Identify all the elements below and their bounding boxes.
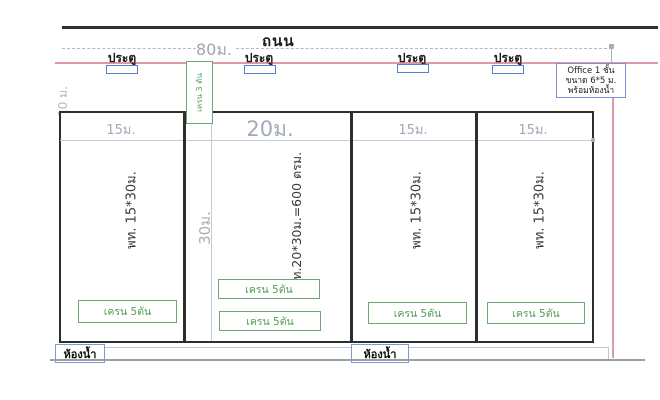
door-symbol-3 — [397, 64, 429, 73]
door-symbol-2 — [244, 65, 276, 74]
road-width-dimension: 80ม. — [196, 38, 232, 63]
section3-width-label: 15ม. — [353, 119, 473, 140]
crane-5ton-label-5: เครน 5ตัน — [512, 305, 559, 322]
section2-width-label: 20ม. — [214, 113, 326, 146]
right-boundary-line — [612, 62, 614, 358]
crane-3ton-label: เครน 3 ตัน — [193, 73, 206, 112]
wall-divider-2 — [350, 113, 353, 341]
site-plan-drawing: ถนน 80ม. 10 ม. ประตู ประตู ประตู ประตู เ… — [0, 0, 660, 400]
crane-5ton-label-3: เครน 5ตัน — [246, 313, 293, 330]
depth-dimension: 30ม. — [193, 211, 217, 245]
construction-line-horizontal — [60, 140, 593, 141]
office-note-line2: ขนาด 6*5 ม. — [557, 76, 625, 86]
office-note-line1: Office 1 ชั้น — [557, 66, 625, 76]
door-symbol-1 — [106, 65, 138, 74]
crane-5ton-box-2: เครน 5ตัน — [218, 279, 320, 299]
section1-width-label: 15ม. — [61, 119, 181, 140]
road-edge-line — [62, 26, 658, 29]
crane-5ton-label-4: เครน 5ตัน — [394, 305, 441, 322]
crane-5ton-box-5: เครน 5ตัน — [487, 302, 585, 324]
section2-area-label: พท.20*30ม.=600 ตรม. — [287, 152, 307, 288]
wall-divider-1 — [183, 113, 186, 341]
bottom-boundary-line — [50, 359, 645, 361]
dimension-tick — [611, 46, 612, 63]
crane-5ton-box-1: เครน 5ตัน — [78, 300, 177, 323]
office-note-box: Office 1 ชั้น ขนาด 6*5 ม. พร้อมห้องน้ำ — [556, 63, 626, 98]
crane-3ton-corridor: เครน 3 ตัน — [186, 61, 213, 124]
door-symbol-4 — [492, 65, 524, 74]
section4-width-label: 15ม. — [477, 119, 589, 140]
crane-5ton-box-4: เครน 5ตัน — [368, 302, 467, 324]
office-note-line3: พร้อมห้องน้ำ — [557, 86, 625, 96]
crane-5ton-label-1: เครน 5ตัน — [104, 303, 151, 320]
section3-area-label: พท. 15*30ม. — [406, 171, 427, 249]
crane-5ton-label-2: เครน 5ตัน — [245, 281, 292, 298]
wall-divider-3 — [475, 113, 478, 341]
construction-line-dot — [591, 138, 595, 142]
section1-area-label: พท. 15*30ม. — [121, 171, 142, 249]
section4-area-label: พท. 15*30ม. — [529, 171, 550, 249]
crane-5ton-box-3: เครน 5ตัน — [219, 311, 321, 331]
